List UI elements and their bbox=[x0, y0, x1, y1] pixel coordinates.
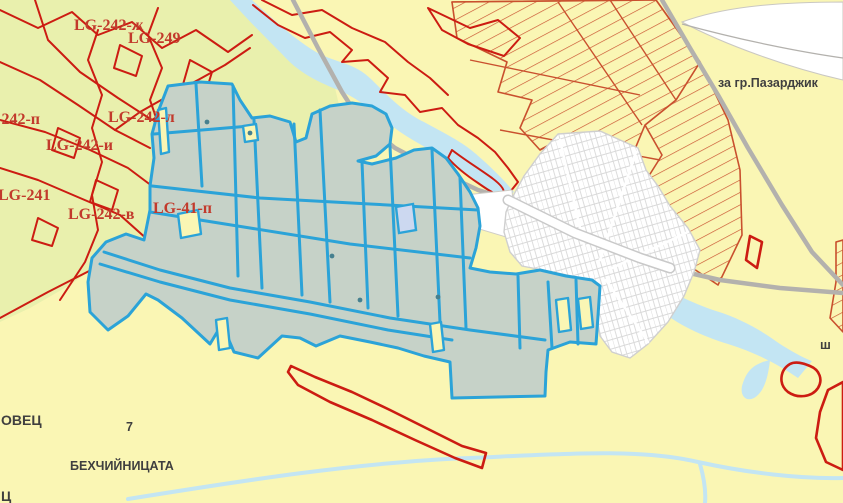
label-sh: ш bbox=[820, 337, 831, 352]
label-lg-242-p: LG-242-п bbox=[0, 111, 40, 128]
label-lg-242-v: LG-242-в bbox=[68, 206, 135, 223]
label-to-pazardzhik: за гр.Пазарджик bbox=[718, 76, 819, 90]
label-parcel-7: 7 bbox=[126, 420, 133, 434]
label-lg-41-p: LG-41-п bbox=[153, 200, 212, 217]
map-canvas[interactable]: LG-242-ж LG-249 LG-242-п LG-242-л LG-242… bbox=[0, 0, 843, 503]
water-parcel bbox=[396, 204, 416, 233]
label-lg-242-i: LG-242-и bbox=[46, 137, 113, 154]
label-lg-249: LG-249 bbox=[128, 30, 180, 47]
label-ts: Ц bbox=[1, 488, 12, 503]
label-bekhchiynitsata: БЕХЧИЙНИЦАТА bbox=[70, 458, 174, 473]
label-ovec: ОВЕЦ bbox=[1, 412, 42, 428]
label-lg-242-l: LG-242-л bbox=[108, 109, 175, 126]
label-lg-241: LG-241 bbox=[0, 187, 50, 204]
